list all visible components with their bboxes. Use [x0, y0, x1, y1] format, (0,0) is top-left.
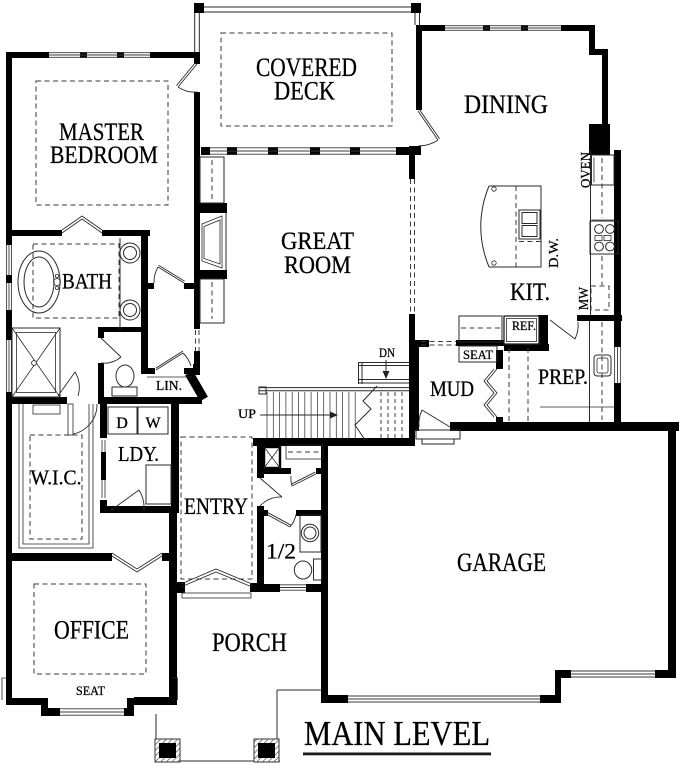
svg-text:BATH: BATH — [62, 269, 112, 294]
svg-text:D: D — [116, 415, 128, 432]
svg-text:GARAGE: GARAGE — [457, 548, 546, 577]
svg-text:D.W.: D.W. — [547, 238, 562, 268]
svg-text:ROOM: ROOM — [284, 252, 351, 279]
svg-text:DINING: DINING — [464, 90, 548, 119]
svg-text:PORCH: PORCH — [212, 628, 287, 657]
svg-text:GREAT: GREAT — [281, 228, 354, 255]
svg-text:UP: UP — [238, 406, 256, 421]
svg-text:PREP.: PREP. — [538, 364, 588, 389]
svg-text:KIT.: KIT. — [510, 279, 550, 306]
svg-text:SEAT: SEAT — [76, 683, 105, 698]
svg-text:MUD: MUD — [430, 376, 474, 401]
svg-text:REF.: REF. — [512, 318, 536, 333]
svg-text:1/2: 1/2 — [266, 539, 296, 564]
svg-text:W.I.C.: W.I.C. — [31, 466, 82, 490]
svg-text:W: W — [145, 415, 161, 432]
svg-text:DN: DN — [379, 345, 396, 360]
svg-text:OFFICE: OFFICE — [54, 616, 129, 645]
svg-text:LDY.: LDY. — [118, 442, 159, 466]
svg-text:MAIN LEVEL: MAIN LEVEL — [304, 714, 490, 753]
svg-text:ENTRY: ENTRY — [184, 494, 248, 519]
svg-text:MW: MW — [577, 286, 592, 310]
svg-text:SEAT: SEAT — [463, 347, 493, 362]
svg-text:OVEN: OVEN — [579, 152, 594, 188]
svg-text:DECK: DECK — [274, 77, 335, 106]
svg-text:BEDROOM: BEDROOM — [50, 142, 158, 169]
svg-text:LIN.: LIN. — [156, 379, 182, 394]
